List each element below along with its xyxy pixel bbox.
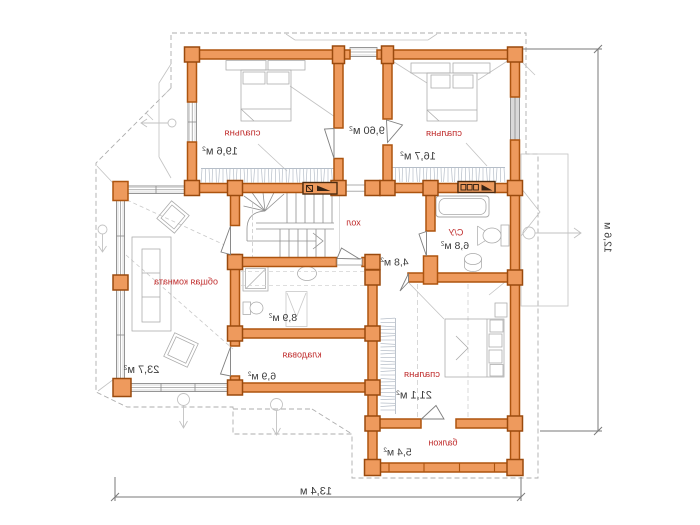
svg-text:16,7 м2: 16,7 м2 [400, 151, 436, 163]
svg-text:6,9 м2: 6,9 м2 [247, 371, 276, 383]
svg-text:9,60 м2: 9,60 м2 [349, 125, 385, 137]
svg-text:С/У: С/У [448, 228, 463, 238]
svg-text:5,4 м2: 5,4 м2 [383, 447, 412, 459]
svg-text:общая комната: общая комната [154, 277, 218, 287]
svg-text:спальня: спальня [404, 369, 440, 380]
svg-text:19,6 м2: 19,6 м2 [202, 146, 238, 158]
svg-text:6,8 м2: 6,8 м2 [440, 240, 469, 252]
svg-text:23,7 м2: 23,7 м2 [123, 364, 159, 376]
svg-text:кладовая: кладовая [282, 350, 321, 360]
svg-text:спальня: спальня [426, 128, 462, 139]
svg-text:4,8 м2: 4,8 м2 [380, 257, 409, 269]
svg-text:балкон: балкон [428, 438, 457, 448]
svg-text:хол: хол [346, 218, 360, 228]
svg-text:21,1 м2: 21,1 м2 [396, 390, 432, 402]
svg-text:8,9 м2: 8,9 м2 [268, 312, 297, 324]
svg-text:12,6 м: 12,6 м [602, 222, 614, 253]
svg-text:спальня: спальня [224, 128, 260, 139]
svg-text:13,4 м: 13,4 м [300, 486, 332, 498]
